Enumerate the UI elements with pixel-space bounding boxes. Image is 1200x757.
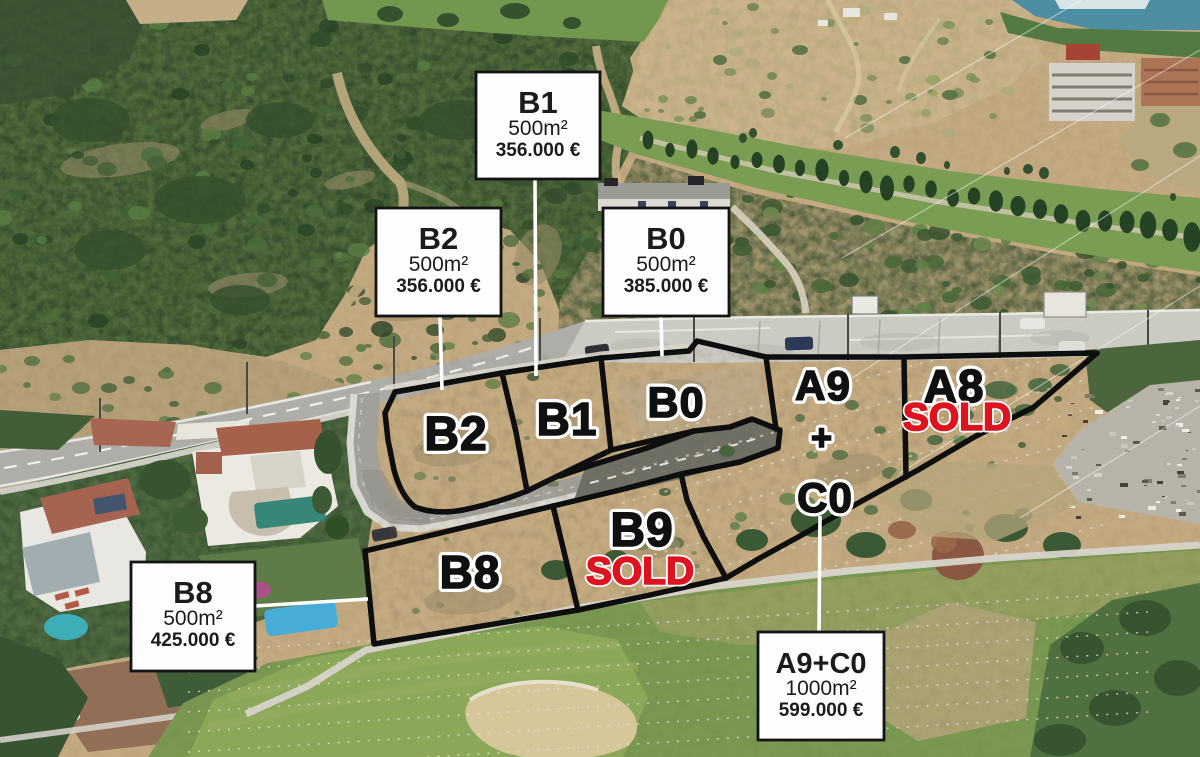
svg-text:385.000 €: 385.000 € [624,276,709,297]
svg-text:500m²: 500m² [508,117,568,140]
svg-text:500m²: 500m² [636,253,696,276]
svg-text:SOLD: SOLD [586,550,694,593]
svg-text:B0: B0 [648,379,705,427]
svg-text:500m²: 500m² [163,607,223,630]
svg-text:356.000 €: 356.000 € [396,276,481,297]
svg-text:B8: B8 [440,546,501,598]
svg-text:1000m²: 1000m² [785,677,856,700]
svg-text:356.000 €: 356.000 € [496,140,581,161]
svg-text:B2: B2 [424,408,487,461]
svg-text:C0: C0 [797,474,853,521]
svg-text:B1: B1 [537,393,598,445]
svg-text:B0: B0 [646,221,686,256]
svg-text:A9+C0: A9+C0 [775,648,866,680]
svg-text:500m²: 500m² [409,253,469,276]
svg-text:B2: B2 [419,221,459,256]
svg-text:SOLD: SOLD [903,396,1011,439]
svg-text:599.000 €: 599.000 € [779,700,864,721]
svg-text:425.000 €: 425.000 € [151,630,236,651]
svg-text:A9: A9 [795,362,851,409]
svg-text:B1: B1 [518,85,558,120]
svg-text:B8: B8 [173,575,213,610]
svg-text:+: + [811,417,833,458]
